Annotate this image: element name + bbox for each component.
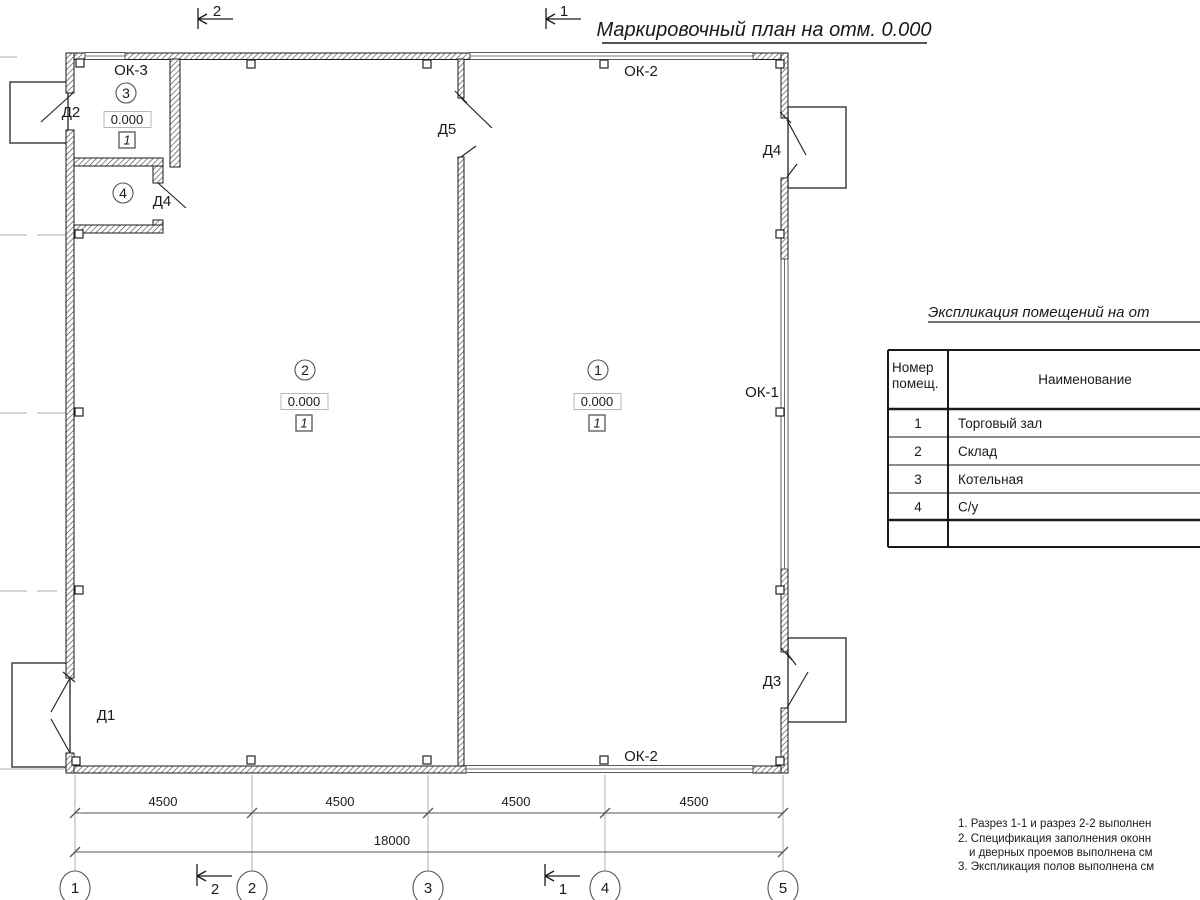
dim-4500: 4500 [149,794,178,809]
table-row: 2 Склад [914,444,997,459]
grid-axis-lines [0,57,783,871]
partition-wall [458,157,464,766]
table-row: 4 С/у [914,500,978,515]
door-d5-leaf [461,146,476,157]
dim-4500: 4500 [680,794,709,809]
label-d1: Д1 [97,707,116,724]
porch-d3 [788,638,846,722]
row-num: 2 [914,444,922,459]
table-row: 3 Котельная [914,472,1023,487]
room-1-number: 1 [594,362,602,378]
label-d4-entry: Д4 [763,142,782,159]
label-d4-wc: Д4 [153,193,172,210]
porch-d1 [12,663,70,767]
section-2-label: 2 [211,881,219,898]
boiler-room-wall [170,59,180,167]
row-name: Склад [958,444,997,459]
section-mark-2-bottom: 2 [197,864,232,898]
door-d5-leaf [461,98,492,128]
label-ok3: ОК-3 [114,62,148,79]
section-1-label: 1 [560,3,568,20]
axis-bubble-3: 3 [424,880,432,897]
section-2-label: 2 [213,3,221,20]
room-3-number: 3 [122,85,130,101]
room-4-number: 4 [119,185,127,201]
notes: 1. Разрез 1-1 и разрез 2-2 выполнен 2. С… [958,818,1154,873]
section-mark-2-top: 2 [198,3,233,29]
room-marks: 1 0.000 1 2 0.000 1 3 0.000 1 4 [104,83,621,431]
table-col1-header: Номер [892,360,934,375]
room-3-floor-type: 1 [123,133,130,148]
room-2-elevation: 0.000 [288,394,321,409]
room-1-floor-type: 1 [593,416,600,431]
axis-bubble-1: 1 [71,880,79,897]
section-mark-1-top: 1 [546,3,581,29]
drawing-title: Маркировочный план на отм. 0.000 [596,19,931,43]
room-1-elevation: 0.000 [581,394,614,409]
label-ok2-top: ОК-2 [624,63,658,80]
porch-d2 [10,82,68,143]
table-row: 1 Торговый зал [914,416,1042,431]
grid-bubbles: 1 2 3 4 5 [60,871,798,900]
note-line: 1. Разрез 1-1 и разрез 2-2 выполнен [958,818,1151,830]
table-col2-header: Наименование [1038,372,1132,387]
drawing-sheet: 1 0.000 1 2 0.000 1 3 0.000 1 4 ОК-3 ОК-… [0,0,1200,900]
row-num: 3 [914,472,922,487]
label-ok2-bottom: ОК-2 [624,748,658,765]
label-ok1: ОК-1 [745,384,779,401]
dim-total: 18000 [374,833,410,848]
label-d2: Д2 [62,104,81,121]
note-line: и дверных проемов выполнена см [969,847,1153,859]
table-title: Экспликация помещений на от [928,304,1149,321]
entry-porches [10,82,846,767]
row-num: 4 [914,500,922,515]
section-mark-1-bottom: 1 [545,864,580,898]
room-table: Экспликация помещений на от Номер помещ.… [888,304,1200,547]
dimension-lines: 4500 4500 4500 4500 18000 [70,794,788,857]
axis-bubble-2: 2 [248,880,256,897]
row-name: Торговый зал [958,416,1042,431]
note-line: 3. Экспликация полов выполнена см [958,861,1154,873]
table-col1-header: помещ. [892,376,938,391]
row-num: 1 [914,416,922,431]
section-1-label: 1 [559,881,567,898]
partition-wall [458,59,464,98]
porch-d4 [788,107,846,188]
dim-4500: 4500 [502,794,531,809]
room-2-floor-type: 1 [300,416,307,431]
label-d5: Д5 [438,121,457,138]
walls [66,53,788,773]
room-2-number: 2 [301,362,309,378]
windows [85,53,788,773]
page-title: Маркировочный план на отм. 0.000 [596,19,931,41]
row-name: Котельная [958,472,1023,487]
dim-4500: 4500 [326,794,355,809]
room-3-elevation: 0.000 [111,112,144,127]
row-name: С/у [958,500,979,515]
label-d3: Д3 [763,673,782,690]
floor-plan-drawing: 1 0.000 1 2 0.000 1 3 0.000 1 4 ОК-3 ОК-… [0,0,1200,900]
axis-bubble-4: 4 [601,880,609,897]
axis-bubble-5: 5 [779,880,787,897]
note-line: 2. Спецификация заполнения оконн [958,833,1151,845]
door-swings [41,91,808,753]
